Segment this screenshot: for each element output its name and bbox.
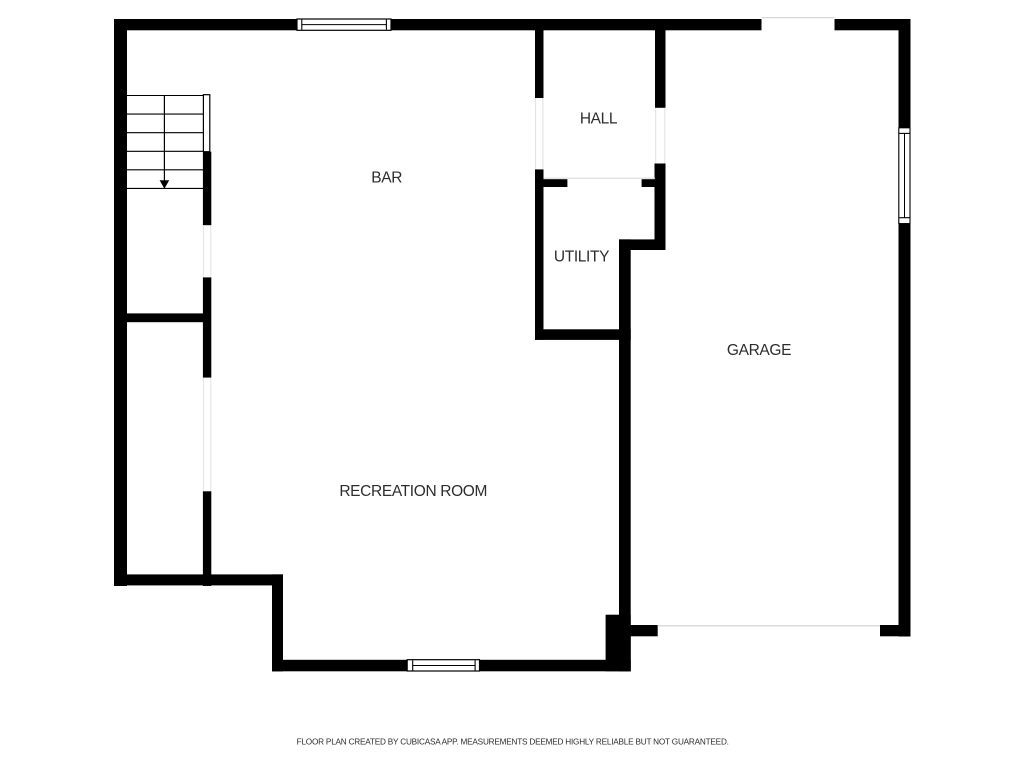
svg-text:FLOOR PLAN CREATED BY CUBICASA: FLOOR PLAN CREATED BY CUBICASA APP. MEAS… — [297, 738, 729, 747]
svg-text:HALL: HALL — [580, 111, 618, 128]
svg-text:RECREATION ROOM: RECREATION ROOM — [339, 483, 487, 500]
svg-text:BAR: BAR — [371, 169, 402, 186]
svg-text:UTILITY: UTILITY — [554, 249, 609, 266]
svg-text:GARAGE: GARAGE — [727, 342, 791, 359]
